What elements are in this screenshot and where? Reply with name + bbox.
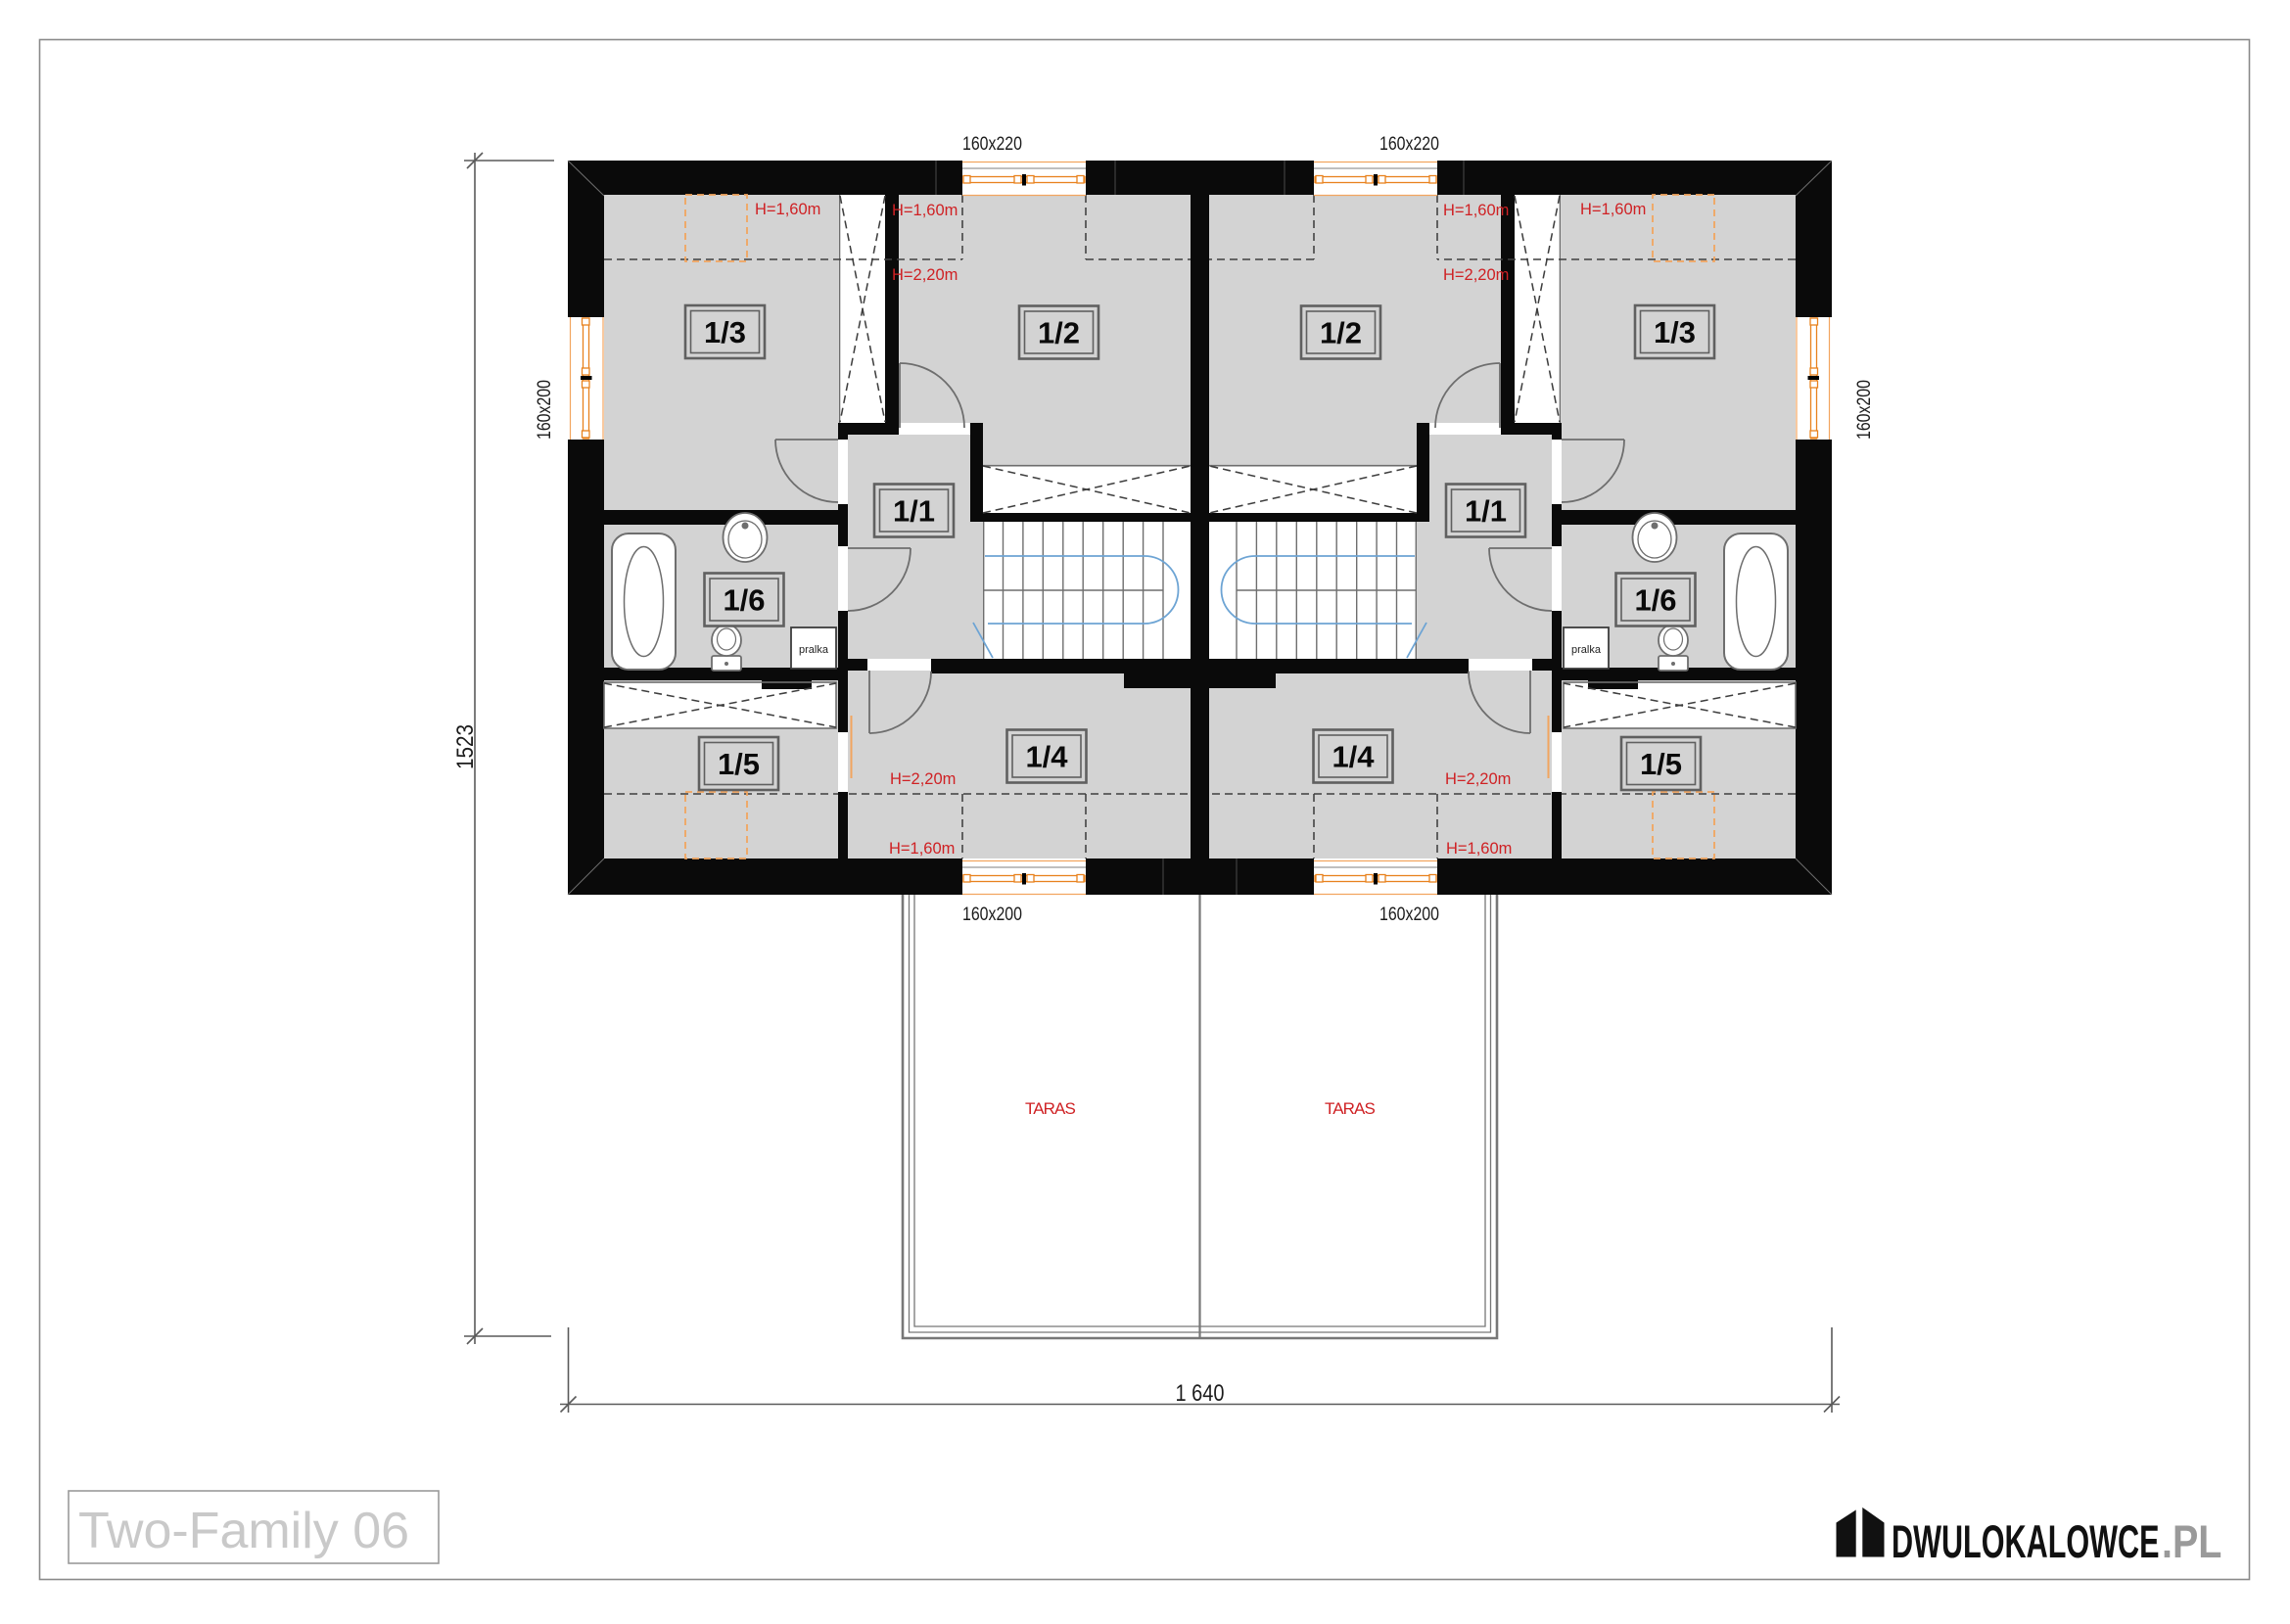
- svg-text:H=2,20m: H=2,20m: [1445, 770, 1511, 788]
- svg-text:DWULOKALOWCE: DWULOKALOWCE: [1892, 1517, 2160, 1568]
- svg-text:1/1: 1/1: [893, 494, 935, 529]
- svg-text:160x220: 160x220: [962, 133, 1022, 155]
- svg-text:1 640: 1 640: [1176, 1380, 1225, 1407]
- svg-text:1/5: 1/5: [718, 747, 760, 781]
- svg-text:H=2,20m: H=2,20m: [1443, 266, 1509, 284]
- svg-text:160x220: 160x220: [1379, 133, 1439, 155]
- svg-text:1523: 1523: [452, 724, 479, 769]
- svg-text:H=1,60m: H=1,60m: [755, 201, 820, 218]
- svg-text:TARAS: TARAS: [1325, 1099, 1375, 1118]
- svg-text:1/3: 1/3: [704, 315, 746, 349]
- svg-text:H=1,60m: H=1,60m: [889, 840, 955, 858]
- svg-text:pralka: pralka: [799, 644, 829, 656]
- svg-text:1/6: 1/6: [723, 583, 765, 618]
- svg-text:160x200: 160x200: [534, 380, 555, 440]
- svg-text:1/5: 1/5: [1640, 747, 1682, 781]
- svg-text:1/4: 1/4: [1332, 740, 1375, 774]
- svg-text:1/2: 1/2: [1038, 316, 1080, 350]
- svg-text:pralka: pralka: [1571, 644, 1602, 656]
- svg-text:1/3: 1/3: [1654, 315, 1696, 349]
- svg-text:.PL: .PL: [2162, 1517, 2221, 1568]
- svg-text:160x200: 160x200: [1853, 380, 1875, 440]
- svg-text:1/2: 1/2: [1320, 316, 1362, 350]
- svg-text:H=2,20m: H=2,20m: [890, 770, 956, 788]
- svg-text:TARAS: TARAS: [1025, 1099, 1075, 1118]
- svg-text:H=2,20m: H=2,20m: [892, 266, 958, 284]
- svg-text:160x200: 160x200: [1379, 904, 1439, 925]
- svg-text:1/4: 1/4: [1025, 740, 1068, 774]
- svg-text:1/1: 1/1: [1465, 494, 1507, 529]
- svg-text:H=1,60m: H=1,60m: [1446, 840, 1512, 858]
- svg-text:H=1,60m: H=1,60m: [1580, 201, 1646, 218]
- svg-text:H=1,60m: H=1,60m: [892, 202, 958, 219]
- svg-text:1/6: 1/6: [1634, 583, 1676, 618]
- svg-text:Two-Family 06: Two-Family 06: [78, 1503, 409, 1559]
- svg-text:160x200: 160x200: [962, 904, 1022, 925]
- svg-text:H=1,60m: H=1,60m: [1443, 202, 1509, 219]
